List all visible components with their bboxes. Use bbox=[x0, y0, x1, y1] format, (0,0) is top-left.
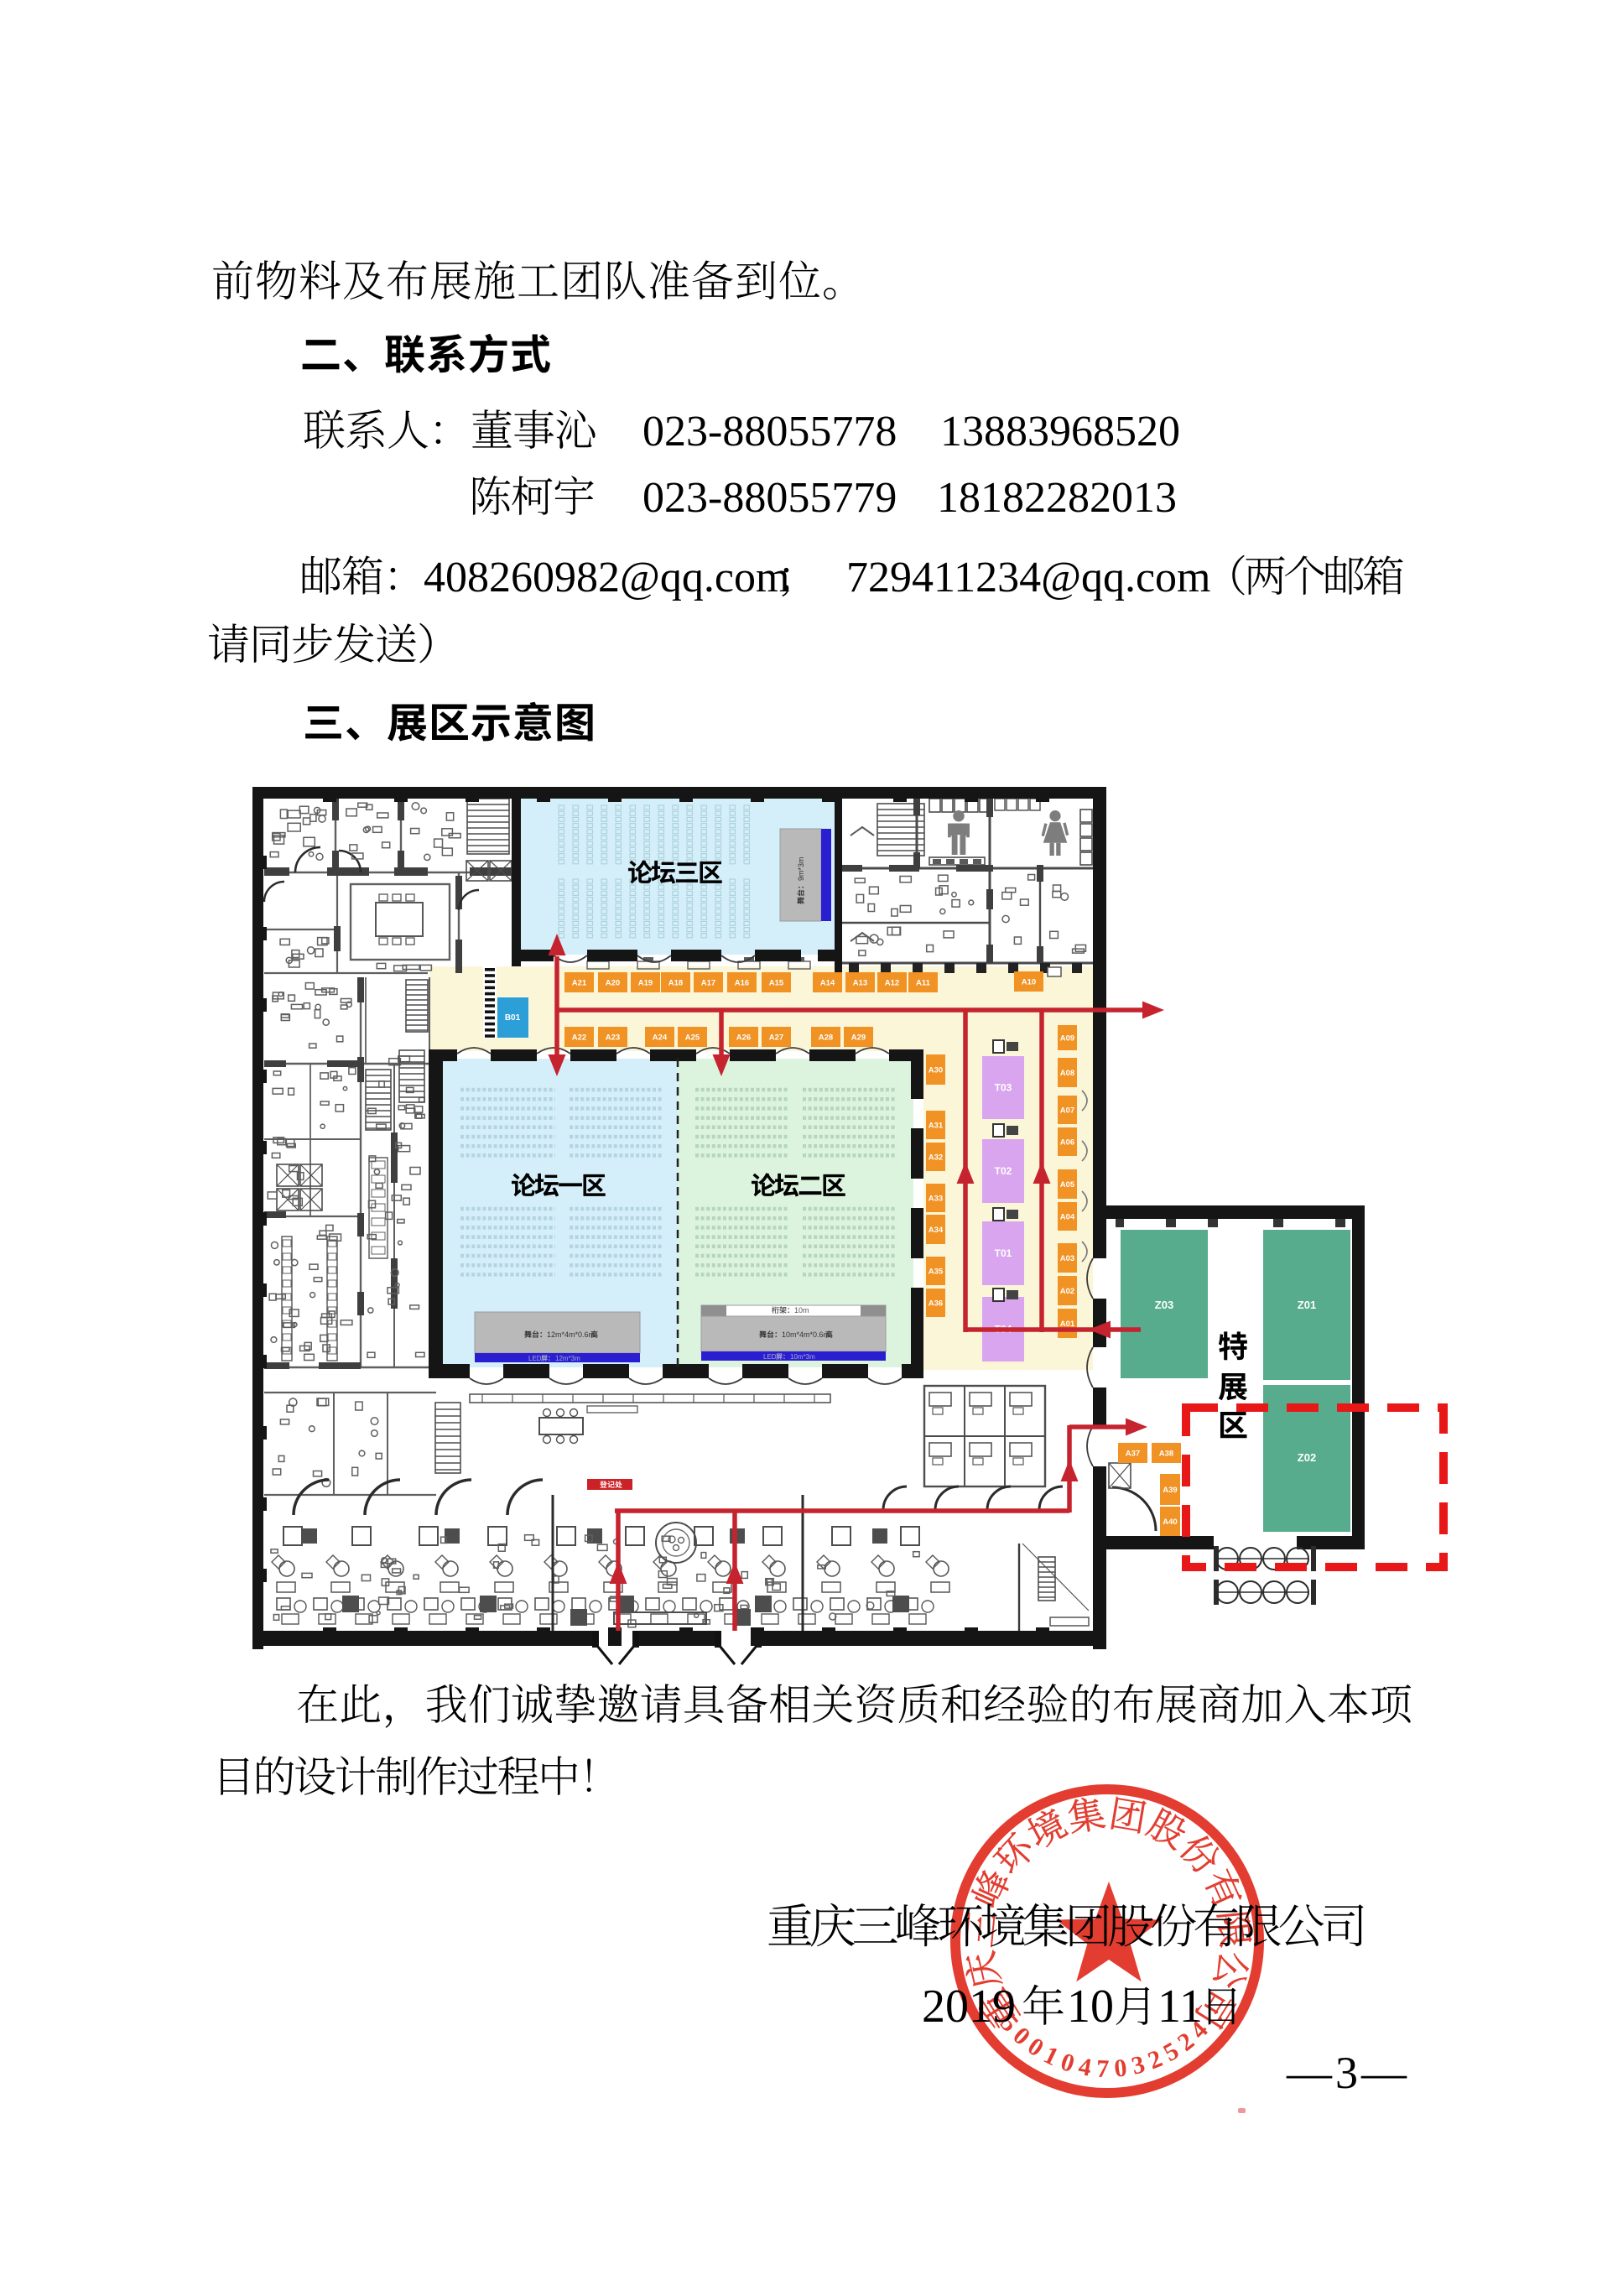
svg-text:729411234@qq.com: 729411234@qq.com bbox=[846, 554, 1210, 601]
svg-text:A24: A24 bbox=[653, 1033, 668, 1043]
svg-text:A40: A40 bbox=[1163, 1518, 1177, 1527]
svg-text:7: 7 bbox=[1096, 2055, 1110, 2084]
svg-text:18182282013: 18182282013 bbox=[937, 474, 1177, 522]
svg-text:A14: A14 bbox=[820, 979, 835, 988]
svg-text:A29: A29 bbox=[851, 1033, 866, 1043]
svg-text:B01: B01 bbox=[505, 1013, 521, 1023]
svg-text:A13: A13 bbox=[853, 979, 867, 988]
svg-text:A10: A10 bbox=[1022, 978, 1036, 987]
svg-text:A31: A31 bbox=[929, 1122, 944, 1131]
svg-text:A12: A12 bbox=[885, 979, 899, 988]
svg-text:10m: 10m bbox=[794, 1306, 809, 1315]
svg-text:A17: A17 bbox=[701, 979, 715, 988]
svg-text:A20: A20 bbox=[606, 979, 620, 988]
svg-text:A19: A19 bbox=[638, 979, 653, 988]
svg-text:A30: A30 bbox=[929, 1066, 943, 1075]
svg-text:A25: A25 bbox=[685, 1033, 700, 1043]
svg-text:A03: A03 bbox=[1060, 1254, 1074, 1263]
svg-text:A32: A32 bbox=[929, 1153, 943, 1163]
svg-text:A26: A26 bbox=[736, 1033, 751, 1043]
svg-text:A23: A23 bbox=[606, 1033, 620, 1043]
svg-text:LED: LED bbox=[528, 1355, 542, 1362]
svg-text:A07: A07 bbox=[1060, 1106, 1074, 1116]
svg-text:A11: A11 bbox=[916, 979, 931, 988]
svg-text:—3—: —3— bbox=[1286, 2048, 1410, 2098]
svg-text:A28: A28 bbox=[819, 1033, 833, 1043]
svg-text:A35: A35 bbox=[929, 1268, 944, 1277]
svg-text:10m*4m*0.6m: 10m*4m*0.6m bbox=[782, 1330, 830, 1339]
svg-text:A27: A27 bbox=[769, 1033, 783, 1043]
svg-text:A37: A37 bbox=[1126, 1450, 1140, 1459]
svg-text:A15: A15 bbox=[769, 979, 784, 988]
svg-text:Z02: Z02 bbox=[1298, 1451, 1316, 1464]
svg-text:9m*3m: 9m*3m bbox=[797, 856, 805, 881]
svg-text:A16: A16 bbox=[735, 979, 749, 988]
svg-text:T01: T01 bbox=[995, 1247, 1012, 1259]
svg-text:10: 10 bbox=[1067, 1981, 1114, 2033]
svg-text:A21: A21 bbox=[572, 979, 587, 988]
svg-text:12m*3m: 12m*3m bbox=[555, 1355, 580, 1362]
svg-text:Z01: Z01 bbox=[1298, 1299, 1316, 1311]
svg-text:A22: A22 bbox=[572, 1033, 586, 1043]
svg-text:408260982@qq.com: 408260982@qq.com bbox=[424, 554, 789, 601]
svg-text:A33: A33 bbox=[929, 1195, 943, 1204]
svg-text:A36: A36 bbox=[929, 1299, 943, 1309]
svg-text:A38: A38 bbox=[1159, 1450, 1173, 1459]
svg-text:A06: A06 bbox=[1060, 1138, 1074, 1148]
svg-text:023-88055779: 023-88055779 bbox=[642, 474, 897, 522]
svg-text:A18: A18 bbox=[668, 979, 683, 988]
svg-text:T03: T03 bbox=[995, 1082, 1012, 1094]
svg-text:A39: A39 bbox=[1163, 1486, 1177, 1495]
svg-text:T02: T02 bbox=[995, 1165, 1012, 1177]
svg-text:A05: A05 bbox=[1060, 1180, 1075, 1190]
svg-text:A09: A09 bbox=[1060, 1034, 1074, 1044]
svg-text:A04: A04 bbox=[1060, 1213, 1075, 1222]
svg-text:A34: A34 bbox=[929, 1226, 944, 1235]
svg-text:A02: A02 bbox=[1060, 1287, 1074, 1296]
svg-text:LED: LED bbox=[763, 1353, 777, 1361]
svg-text:10m*3m: 10m*3m bbox=[790, 1353, 815, 1361]
svg-text:13883968520: 13883968520 bbox=[940, 408, 1180, 456]
svg-text:Z03: Z03 bbox=[1155, 1299, 1173, 1311]
svg-text:023-88055778: 023-88055778 bbox=[642, 408, 897, 456]
svg-text:A08: A08 bbox=[1060, 1069, 1074, 1078]
svg-text:12m*4m*0.6m: 12m*4m*0.6m bbox=[547, 1330, 595, 1339]
